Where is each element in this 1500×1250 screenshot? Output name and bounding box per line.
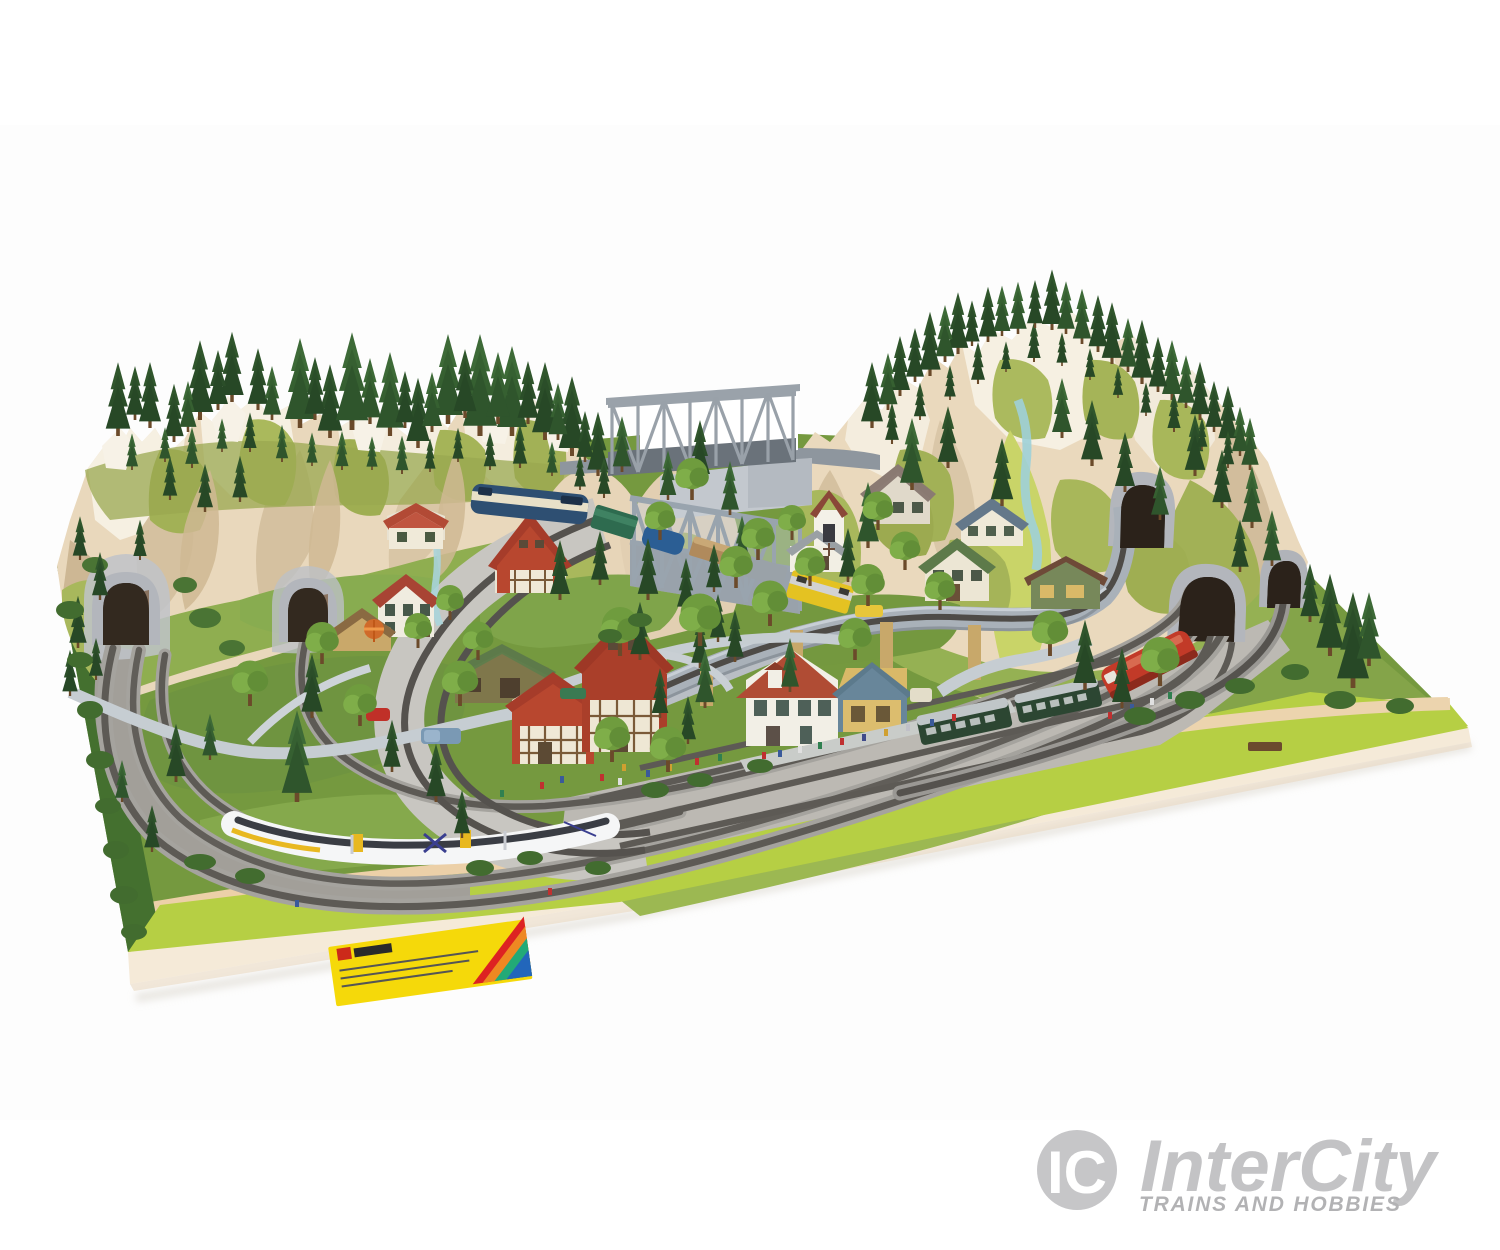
- svg-text:TRAINS AND HOBBIES: TRAINS AND HOBBIES: [1139, 1193, 1402, 1216]
- svg-text:IC: IC: [1047, 1139, 1107, 1206]
